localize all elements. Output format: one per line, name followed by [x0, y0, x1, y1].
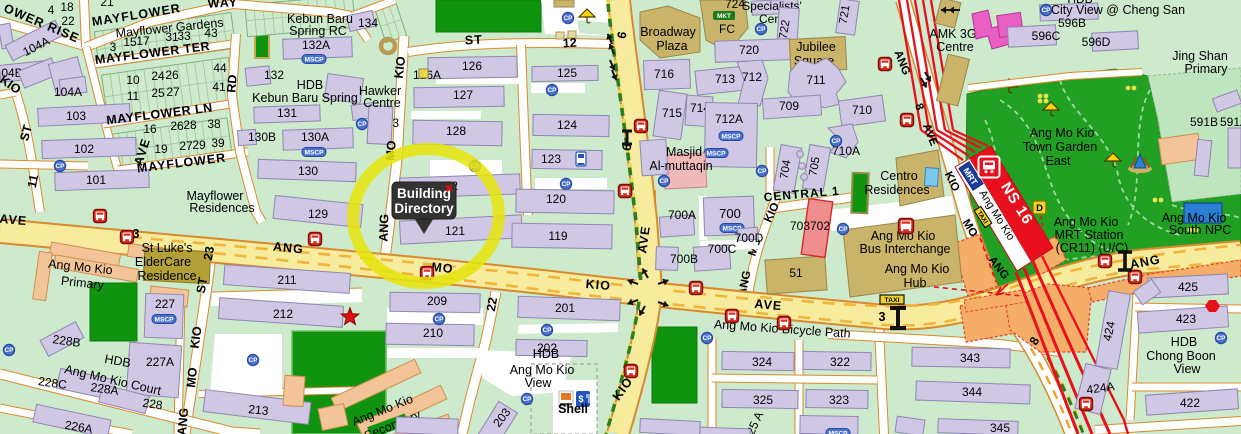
- svg-text:709: 709: [779, 99, 799, 113]
- svg-text:596D: 596D: [1082, 35, 1111, 49]
- svg-text:702: 702: [810, 219, 830, 233]
- svg-text:AMK 3G: AMK 3G: [929, 27, 976, 41]
- svg-text:700B: 700B: [670, 252, 698, 266]
- svg-text:591A: 591A: [1220, 115, 1241, 129]
- svg-text:CP: CP: [523, 396, 533, 403]
- svg-text:KIO: KIO: [585, 277, 611, 293]
- svg-text:591B: 591B: [1190, 115, 1218, 129]
- svg-text:121: 121: [445, 224, 465, 238]
- svg-text:703: 703: [790, 219, 810, 233]
- svg-text:View: View: [525, 376, 553, 390]
- svg-text:TAXI: TAXI: [885, 297, 900, 304]
- svg-text:130A: 130A: [301, 130, 329, 144]
- svg-text:715: 715: [662, 106, 682, 120]
- svg-text:AVE: AVE: [0, 212, 28, 228]
- svg-text:Primary: Primary: [1184, 62, 1228, 76]
- svg-text:Spring RC: Spring RC: [289, 24, 347, 38]
- svg-text:123: 123: [541, 152, 561, 166]
- svg-text:324: 324: [752, 355, 772, 369]
- svg-text:MKT: MKT: [717, 13, 731, 20]
- svg-text:CP: CP: [548, 87, 558, 94]
- svg-text:700A: 700A: [668, 208, 696, 222]
- svg-text:131: 131: [277, 106, 297, 120]
- svg-text:596B: 596B: [1058, 16, 1086, 30]
- svg-text:38: 38: [207, 117, 221, 131]
- svg-text:713: 713: [715, 72, 735, 86]
- svg-text:CP: CP: [56, 163, 66, 170]
- svg-text:Broadway: Broadway: [640, 25, 696, 39]
- svg-text:134: 134: [358, 16, 378, 30]
- svg-text:ST: ST: [194, 276, 211, 295]
- svg-text:CP: CP: [249, 357, 259, 364]
- svg-text:CP: CP: [358, 121, 368, 128]
- svg-text:716: 716: [654, 67, 674, 81]
- svg-text:MSCP: MSCP: [154, 316, 174, 323]
- svg-text:28: 28: [183, 118, 197, 132]
- svg-text:CP: CP: [703, 335, 713, 342]
- svg-text:HDB: HDB: [533, 347, 559, 361]
- svg-text:12: 12: [562, 36, 577, 51]
- svg-text:ANG: ANG: [175, 407, 191, 434]
- svg-text:126: 126: [462, 59, 482, 73]
- svg-text:Centre: Centre: [936, 40, 974, 54]
- svg-text:129: 129: [308, 207, 328, 221]
- svg-text:322: 322: [830, 355, 850, 369]
- svg-text:Residence: Residence: [137, 269, 196, 283]
- svg-text:View: View: [1174, 362, 1202, 376]
- svg-text:Bus Interchange: Bus Interchange: [859, 242, 950, 256]
- svg-text:Jing Shan: Jing Shan: [1172, 49, 1228, 63]
- svg-text:East: East: [1045, 154, 1071, 168]
- svg-text:CP: CP: [758, 168, 768, 175]
- svg-text:209: 209: [427, 294, 447, 308]
- svg-text:43: 43: [204, 26, 218, 40]
- svg-text:27: 27: [166, 85, 180, 99]
- svg-text:25: 25: [151, 86, 165, 100]
- svg-text:CP: CP: [660, 178, 670, 185]
- svg-text:MSCP: MSCP: [721, 133, 741, 140]
- svg-text:CP: CP: [1042, 7, 1052, 14]
- svg-text:Jubilee: Jubilee: [796, 40, 836, 54]
- svg-text:119: 119: [548, 229, 567, 243]
- svg-text:Shell: Shell: [558, 402, 588, 416]
- svg-text:Chong Boon: Chong Boon: [1146, 349, 1216, 363]
- svg-text:325: 325: [753, 393, 773, 407]
- svg-text:MSCP: MSCP: [706, 150, 726, 157]
- svg-text:HDB: HDB: [297, 78, 323, 92]
- svg-text:Centre: Centre: [363, 96, 401, 110]
- svg-text:125: 125: [557, 66, 577, 80]
- svg-text:228: 228: [142, 396, 164, 413]
- svg-text:22: 22: [61, 14, 75, 28]
- svg-text:51: 51: [789, 266, 803, 280]
- svg-text:29: 29: [192, 138, 206, 152]
- svg-text:425: 425: [1178, 280, 1198, 294]
- svg-text:10: 10: [126, 73, 140, 87]
- svg-text:22: 22: [484, 296, 500, 312]
- svg-text:423: 423: [1176, 312, 1196, 326]
- svg-text:18: 18: [60, 0, 74, 14]
- svg-text:Residences: Residences: [189, 201, 254, 215]
- svg-text:15: 15: [123, 35, 137, 49]
- svg-text:700C: 700C: [708, 242, 737, 256]
- svg-text:CP: CP: [1217, 335, 1227, 342]
- svg-text:227: 227: [155, 297, 175, 311]
- svg-text:19: 19: [154, 142, 168, 156]
- svg-text:103: 103: [66, 109, 86, 123]
- svg-text:D: D: [1036, 203, 1043, 214]
- svg-text:Ang Mo Kio: Ang Mo Kio: [1030, 126, 1095, 140]
- svg-text:24: 24: [151, 69, 165, 83]
- svg-text:710: 710: [852, 103, 872, 117]
- svg-text:CP: CP: [562, 181, 572, 188]
- svg-text:ANG: ANG: [377, 214, 392, 242]
- svg-text:104A: 104A: [54, 85, 82, 99]
- svg-text:422: 422: [1180, 396, 1200, 410]
- svg-text:MO: MO: [184, 367, 200, 389]
- svg-text:210: 210: [423, 326, 443, 340]
- svg-text:102: 102: [74, 142, 94, 156]
- svg-text:MSCP: MSCP: [304, 149, 324, 156]
- svg-text:323: 323: [829, 393, 849, 407]
- svg-text:Town Garden: Town Garden: [1023, 140, 1097, 154]
- svg-text:South NPC: South NPC: [1169, 223, 1232, 237]
- svg-text:130B: 130B: [248, 130, 276, 144]
- svg-text:CP: CP: [564, 15, 574, 22]
- svg-text:Plaza: Plaza: [656, 39, 687, 53]
- svg-text:39: 39: [211, 136, 225, 150]
- svg-text:RD: RD: [224, 74, 240, 93]
- svg-text:101: 101: [86, 173, 106, 187]
- svg-text:CP: CP: [435, 316, 445, 323]
- svg-text:21: 21: [100, 0, 114, 9]
- svg-text:130: 130: [298, 164, 318, 178]
- svg-text:212: 212: [273, 307, 293, 321]
- svg-text:16: 16: [143, 122, 157, 136]
- svg-text:FC: FC: [719, 22, 735, 36]
- svg-text:Centro: Centro: [880, 169, 918, 183]
- svg-text:Ang Mo Kio: Ang Mo Kio: [510, 363, 575, 377]
- svg-text:201: 201: [555, 301, 575, 315]
- svg-text:712A: 712A: [715, 112, 743, 126]
- svg-text:227A: 227A: [146, 355, 174, 369]
- svg-text:120: 120: [546, 192, 566, 206]
- svg-text:132A: 132A: [302, 38, 330, 52]
- svg-text:Ang Mo Kio: Ang Mo Kio: [1054, 215, 1119, 229]
- svg-text:44: 44: [213, 61, 227, 75]
- svg-text:213: 213: [248, 402, 270, 418]
- svg-text:596C: 596C: [1032, 29, 1061, 43]
- svg-text:ST: ST: [464, 33, 483, 48]
- svg-text:MSCP: MSCP: [304, 56, 324, 63]
- svg-text:AVE: AVE: [754, 297, 783, 313]
- svg-text:Directory: Directory: [394, 201, 454, 216]
- svg-text:Al-muttaqin: Al-muttaqin: [649, 159, 712, 173]
- svg-text:127: 127: [453, 88, 473, 102]
- svg-text:345: 345: [990, 421, 1010, 434]
- svg-text:344: 344: [962, 385, 982, 399]
- svg-text:11: 11: [127, 89, 140, 103]
- svg-text:3: 3: [879, 310, 886, 324]
- svg-text:CP: CP: [832, 138, 842, 145]
- svg-text:St Luke's: St Luke's: [141, 241, 192, 255]
- svg-text:City View @ Cheng San: City View @ Cheng San: [1051, 3, 1185, 17]
- svg-text:CP: CP: [757, 26, 767, 33]
- svg-text:23: 23: [201, 245, 217, 261]
- svg-text:27: 27: [179, 139, 193, 153]
- svg-text:343: 343: [960, 351, 980, 365]
- svg-text:Hub: Hub: [904, 276, 927, 290]
- svg-text:Building: Building: [397, 186, 451, 201]
- svg-text:124: 124: [557, 118, 577, 132]
- svg-text:700: 700: [719, 206, 741, 221]
- svg-text:ElderCare: ElderCare: [135, 255, 191, 269]
- svg-text:WAY: WAY: [207, 0, 238, 11]
- svg-text:26: 26: [165, 68, 179, 82]
- svg-text:4: 4: [48, 3, 55, 17]
- svg-text:712: 712: [742, 70, 762, 84]
- svg-text:CP: CP: [5, 347, 15, 354]
- svg-text:Residences: Residences: [864, 183, 929, 197]
- svg-text:MSCP: MSCP: [828, 430, 848, 434]
- svg-text:720: 720: [739, 43, 759, 57]
- svg-text:CP: CP: [543, 327, 553, 334]
- svg-text:✖: ✖: [445, 183, 454, 195]
- svg-text:(CR11) (U/C): (CR11) (U/C): [1056, 241, 1129, 255]
- svg-text:132: 132: [264, 68, 284, 82]
- svg-text:700D: 700D: [735, 231, 764, 245]
- svg-text:Masjid: Masjid: [666, 145, 702, 159]
- svg-text:Ang Mo Kio: Ang Mo Kio: [885, 262, 950, 276]
- svg-text:711: 711: [806, 73, 825, 87]
- svg-text:26: 26: [170, 119, 184, 133]
- svg-text:128: 128: [446, 124, 466, 138]
- svg-text:CP: CP: [839, 226, 849, 233]
- svg-text:211: 211: [277, 273, 296, 287]
- svg-text:MRT Station: MRT Station: [1054, 228, 1123, 242]
- svg-text:Kebun Baru Spring: Kebun Baru Spring: [252, 91, 358, 105]
- svg-text:KIO: KIO: [392, 55, 409, 79]
- svg-text:HDB: HDB: [1171, 335, 1197, 349]
